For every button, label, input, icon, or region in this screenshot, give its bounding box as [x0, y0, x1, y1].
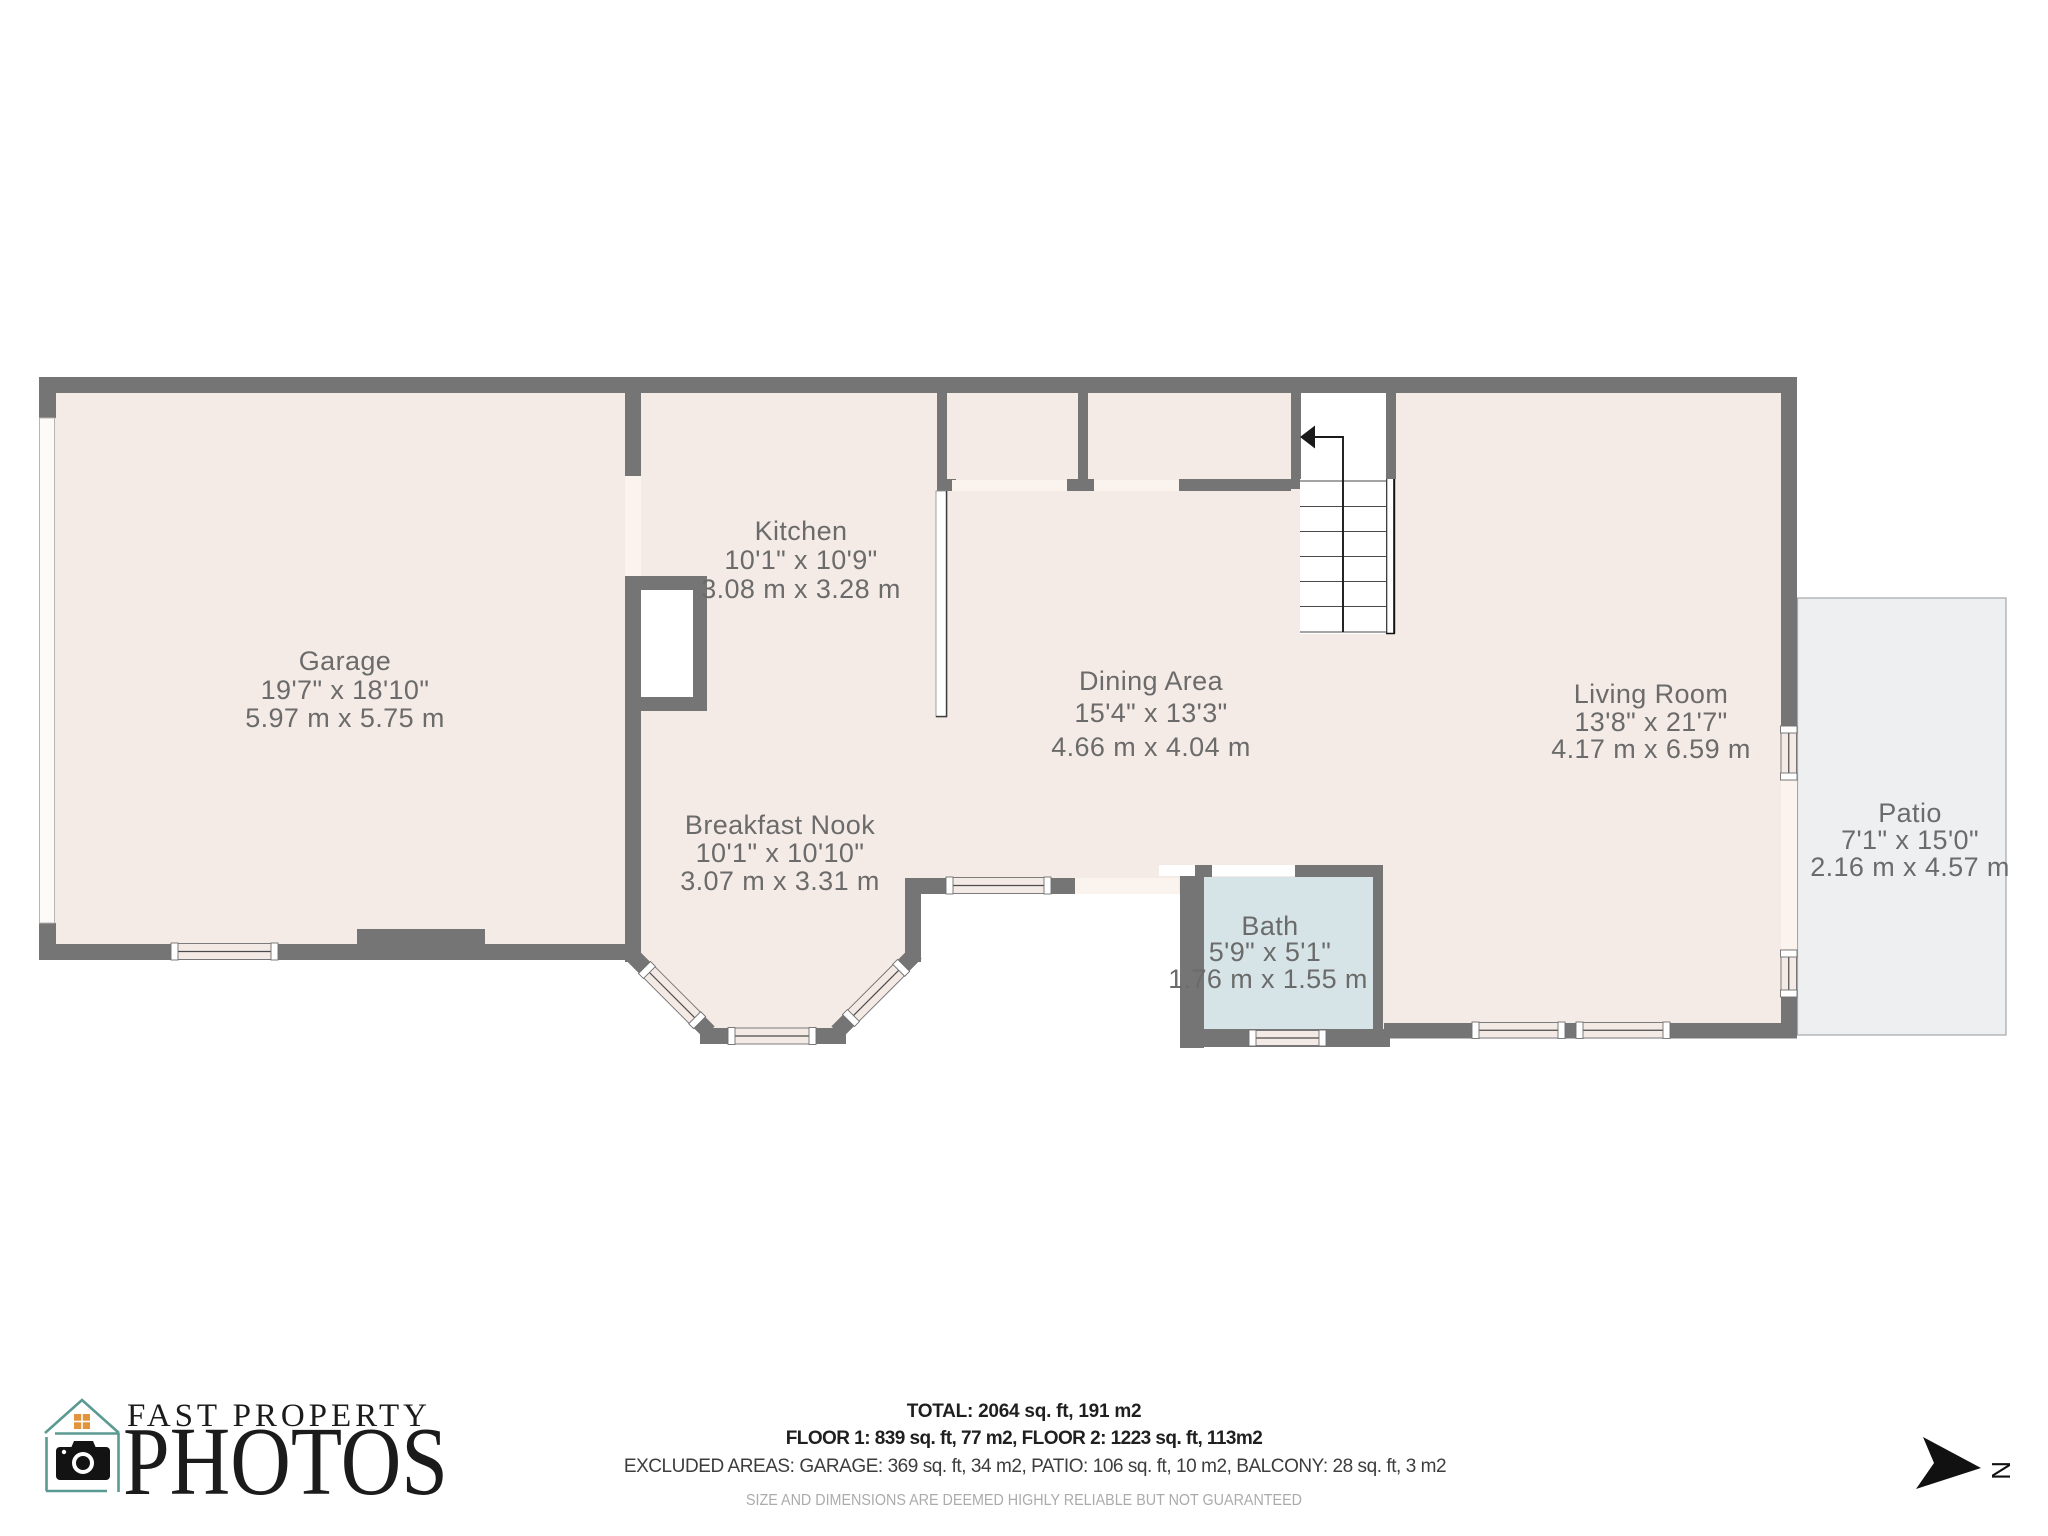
svg-text:PHOTOS: PHOTOS	[123, 1408, 448, 1515]
svg-text:SIZE AND DIMENSIONS ARE DEEMED: SIZE AND DIMENSIONS ARE DEEMED HIGHLY RE…	[746, 1492, 1302, 1509]
svg-text:2.16 m x 4.57 m: 2.16 m x 4.57 m	[1810, 852, 2010, 882]
svg-text:13'8" x 21'7": 13'8" x 21'7"	[1574, 707, 1727, 737]
svg-text:FLOOR 1: 839 sq. ft, 77 m2, FL: FLOOR 1: 839 sq. ft, 77 m2, FLOOR 2: 122…	[786, 1428, 1263, 1449]
svg-text:19'7" x 18'10": 19'7" x 18'10"	[261, 675, 430, 705]
svg-text:Dining Area: Dining Area	[1079, 666, 1224, 696]
svg-text:7'1" x 15'0": 7'1" x 15'0"	[1841, 825, 1979, 855]
svg-text:5'9" x 5'1": 5'9" x 5'1"	[1209, 937, 1331, 967]
svg-text:15'4" x 13'3": 15'4" x 13'3"	[1074, 698, 1227, 728]
svg-text:3.08 m x 3.28 m: 3.08 m x 3.28 m	[701, 574, 901, 604]
svg-text:Kitchen: Kitchen	[755, 516, 848, 546]
svg-text:TOTAL: 2064 sq. ft, 191 m2: TOTAL: 2064 sq. ft, 191 m2	[907, 1401, 1142, 1422]
svg-text:Breakfast Nook: Breakfast Nook	[685, 810, 875, 840]
svg-text:4.17 m x 6.59 m: 4.17 m x 6.59 m	[1551, 734, 1751, 764]
svg-text:10'1" x 10'10": 10'1" x 10'10"	[696, 838, 865, 868]
svg-text:4.66 m x 4.04 m: 4.66 m x 4.04 m	[1051, 732, 1251, 762]
svg-text:3.07 m x 3.31 m: 3.07 m x 3.31 m	[680, 866, 880, 896]
svg-text:Living Room: Living Room	[1574, 679, 1728, 709]
svg-text:5.97 m x 5.75 m: 5.97 m x 5.75 m	[245, 703, 445, 733]
svg-text:10'1" x 10'9": 10'1" x 10'9"	[724, 545, 877, 575]
svg-text:EXCLUDED AREAS: GARAGE: 369 sq: EXCLUDED AREAS: GARAGE: 369 sq. ft, 34 m…	[624, 1456, 1446, 1477]
svg-text:Patio: Patio	[1878, 798, 1942, 828]
svg-text:Garage: Garage	[299, 646, 391, 676]
svg-text:N: N	[1986, 1461, 2016, 1480]
svg-text:1.76 m x 1.55 m: 1.76 m x 1.55 m	[1168, 964, 1368, 994]
